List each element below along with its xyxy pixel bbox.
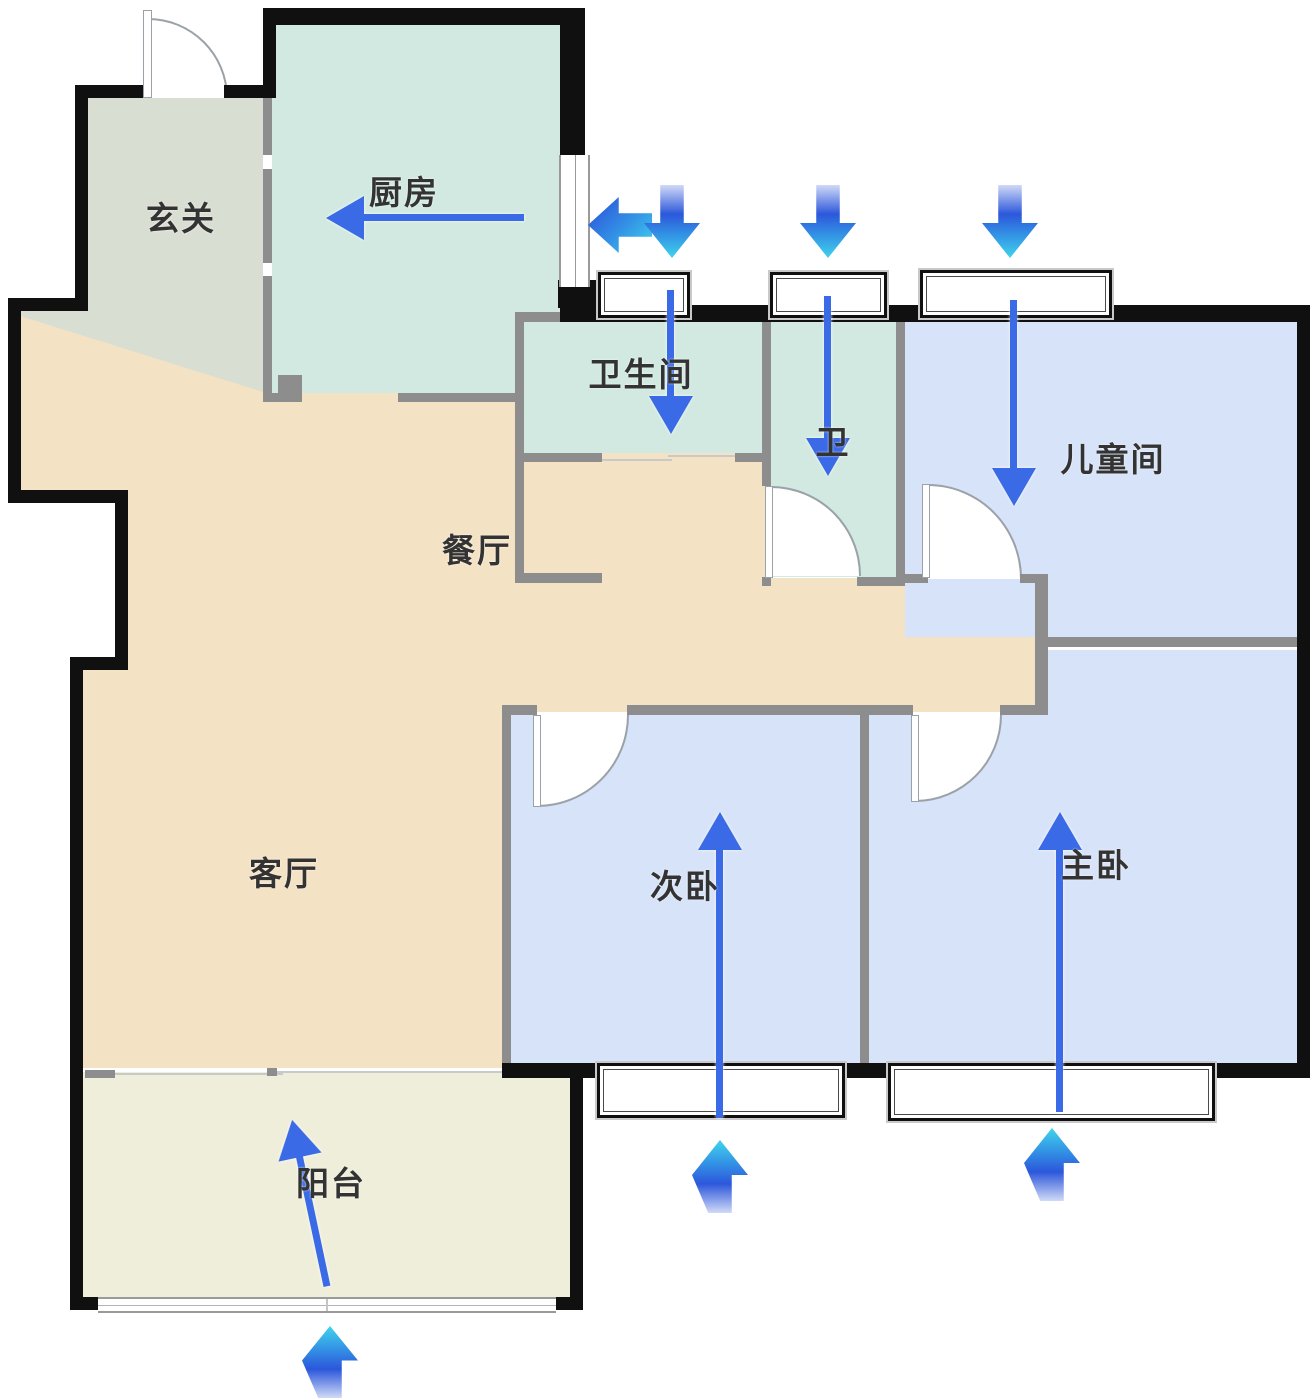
wall-secondbed-bottom-left [502, 1063, 599, 1078]
wall-bathroom-bottom-right [735, 453, 762, 462]
room-label-entry: 玄关 [146, 192, 216, 240]
wall-hall-bottom [627, 705, 913, 715]
wall-east [1297, 305, 1310, 1078]
wall-west-3 [70, 657, 83, 1310]
wall-west-2 [115, 490, 128, 670]
wall-kitchen-corner-block [278, 375, 302, 402]
wall-masterbed-bottom-right [1215, 1063, 1310, 1078]
room-label-dining-room: 餐厅 [442, 524, 512, 572]
arrow-up-icon [1024, 1128, 1080, 1201]
balcony-sliding-door [115, 1073, 283, 1075]
balcony-railing-window [98, 1297, 556, 1313]
wall-toilet-bottom [762, 577, 771, 586]
wall-living-secondbed [502, 705, 511, 1066]
bathroom-sliding-door-track [668, 455, 735, 457]
toilet-door-leaf [765, 486, 773, 578]
wall-notch-2 [8, 490, 128, 503]
wall-hall-bottom [1000, 705, 1048, 715]
arrow-up-icon [692, 1140, 748, 1213]
wall-bathroom-left [515, 312, 524, 583]
room-label-bathroom: 卫生间 [589, 348, 694, 396]
kitchen-east-window [559, 155, 590, 287]
balcony-divider-block [85, 1070, 115, 1078]
room-label-kids-room: 儿童间 [1061, 433, 1166, 481]
wall-toilet-kids [896, 322, 905, 586]
master-bedroom-door-leaf [911, 715, 919, 802]
room-label-master-bedroom: 主卧 [1061, 839, 1131, 887]
bathroom-window [598, 272, 690, 318]
wall-jamb [263, 155, 272, 169]
wall-balcony-bottom-left [70, 1297, 100, 1310]
room-label-second-bedroom: 次卧 [650, 860, 720, 908]
master-bedroom-window [888, 1063, 1215, 1121]
wall-entry-left [75, 85, 88, 311]
wall-kitchen-top [263, 8, 585, 25]
wall-west-1 [8, 298, 21, 503]
balcony-divider-jamb [267, 1068, 277, 1076]
entry-door-leaf [143, 10, 152, 98]
wall-balcony-right [570, 1070, 583, 1310]
wall-bathroom-bottom-left [515, 453, 602, 462]
room-label-balcony: 阳台 [296, 1157, 366, 1205]
kids-room-door-leaf [922, 484, 930, 578]
wall-kids-master-divider [1048, 637, 1297, 647]
wall-kitchen-right-upper [560, 8, 585, 158]
floor-plan: 玄关 厨房 卫生间 卫 儿童间 餐厅 客厅 次卧 主卧 阳台 [0, 0, 1315, 1400]
wall-hall-right [1035, 574, 1048, 715]
entry-door-swing [148, 18, 228, 98]
second-bedroom-door-leaf [533, 715, 541, 807]
wall-bathroom-toilet [762, 322, 771, 486]
room-label-kitchen: 厨房 [369, 166, 439, 214]
wall-entry-top-right [224, 85, 276, 98]
wall-secondbed-masterbed [860, 715, 869, 1066]
wall-dining-stub [515, 573, 602, 583]
room-label-toilet: 卫 [816, 416, 851, 464]
arrow-down-icon [644, 185, 700, 258]
arrow-down-icon [982, 185, 1038, 258]
bathroom-sliding-door-track [602, 459, 672, 461]
arrow-down-icon [800, 185, 856, 258]
wall-bedrooms-bottom-mid [845, 1063, 890, 1078]
room-label-living-room: 客厅 [249, 847, 319, 895]
wall-kitchen-bottom-right [398, 393, 515, 402]
arrow-left-icon [588, 197, 652, 253]
arrow-up-icon [302, 1326, 358, 1398]
wall-kitchen-entry [263, 98, 272, 398]
wall-jamb [263, 263, 272, 276]
